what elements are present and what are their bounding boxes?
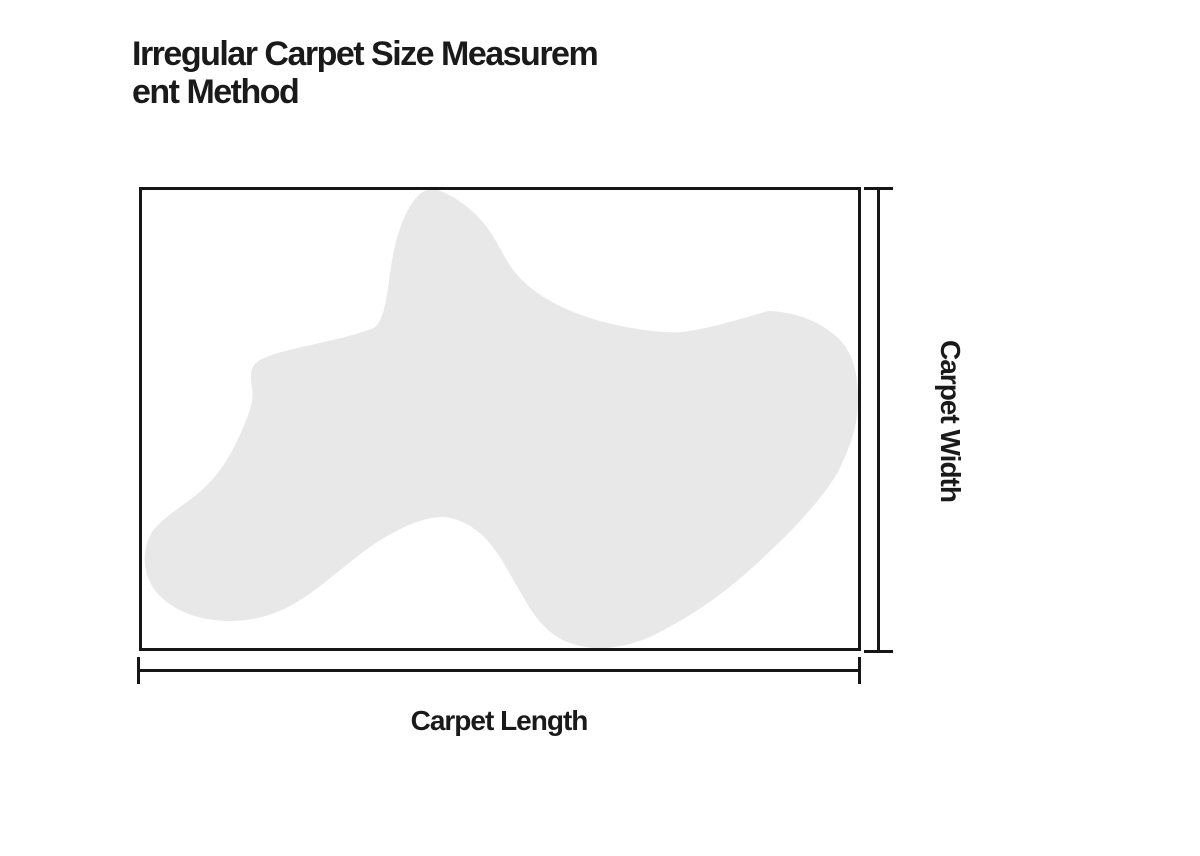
carpet-width-label: Carpet Width xyxy=(934,340,966,502)
irregular-carpet-shape xyxy=(145,190,858,648)
page-title: Irregular Carpet Size Measurem ent Metho… xyxy=(132,35,597,111)
width-dimension-top-tick xyxy=(864,187,893,190)
carpet-length-label: Carpet Length xyxy=(411,705,588,737)
width-dimension-line xyxy=(877,187,880,653)
length-dimension-line xyxy=(137,669,861,672)
diagram-canvas: Irregular Carpet Size Measurem ent Metho… xyxy=(0,0,1200,856)
page-title-line-2: ent Method xyxy=(132,73,597,111)
width-dimension-bottom-tick xyxy=(864,650,893,653)
length-dimension-right-tick xyxy=(858,657,861,684)
page-title-line-1: Irregular Carpet Size Measurem xyxy=(132,35,597,73)
length-dimension-left-tick xyxy=(137,657,140,684)
carpet-shape-svg xyxy=(142,190,858,648)
